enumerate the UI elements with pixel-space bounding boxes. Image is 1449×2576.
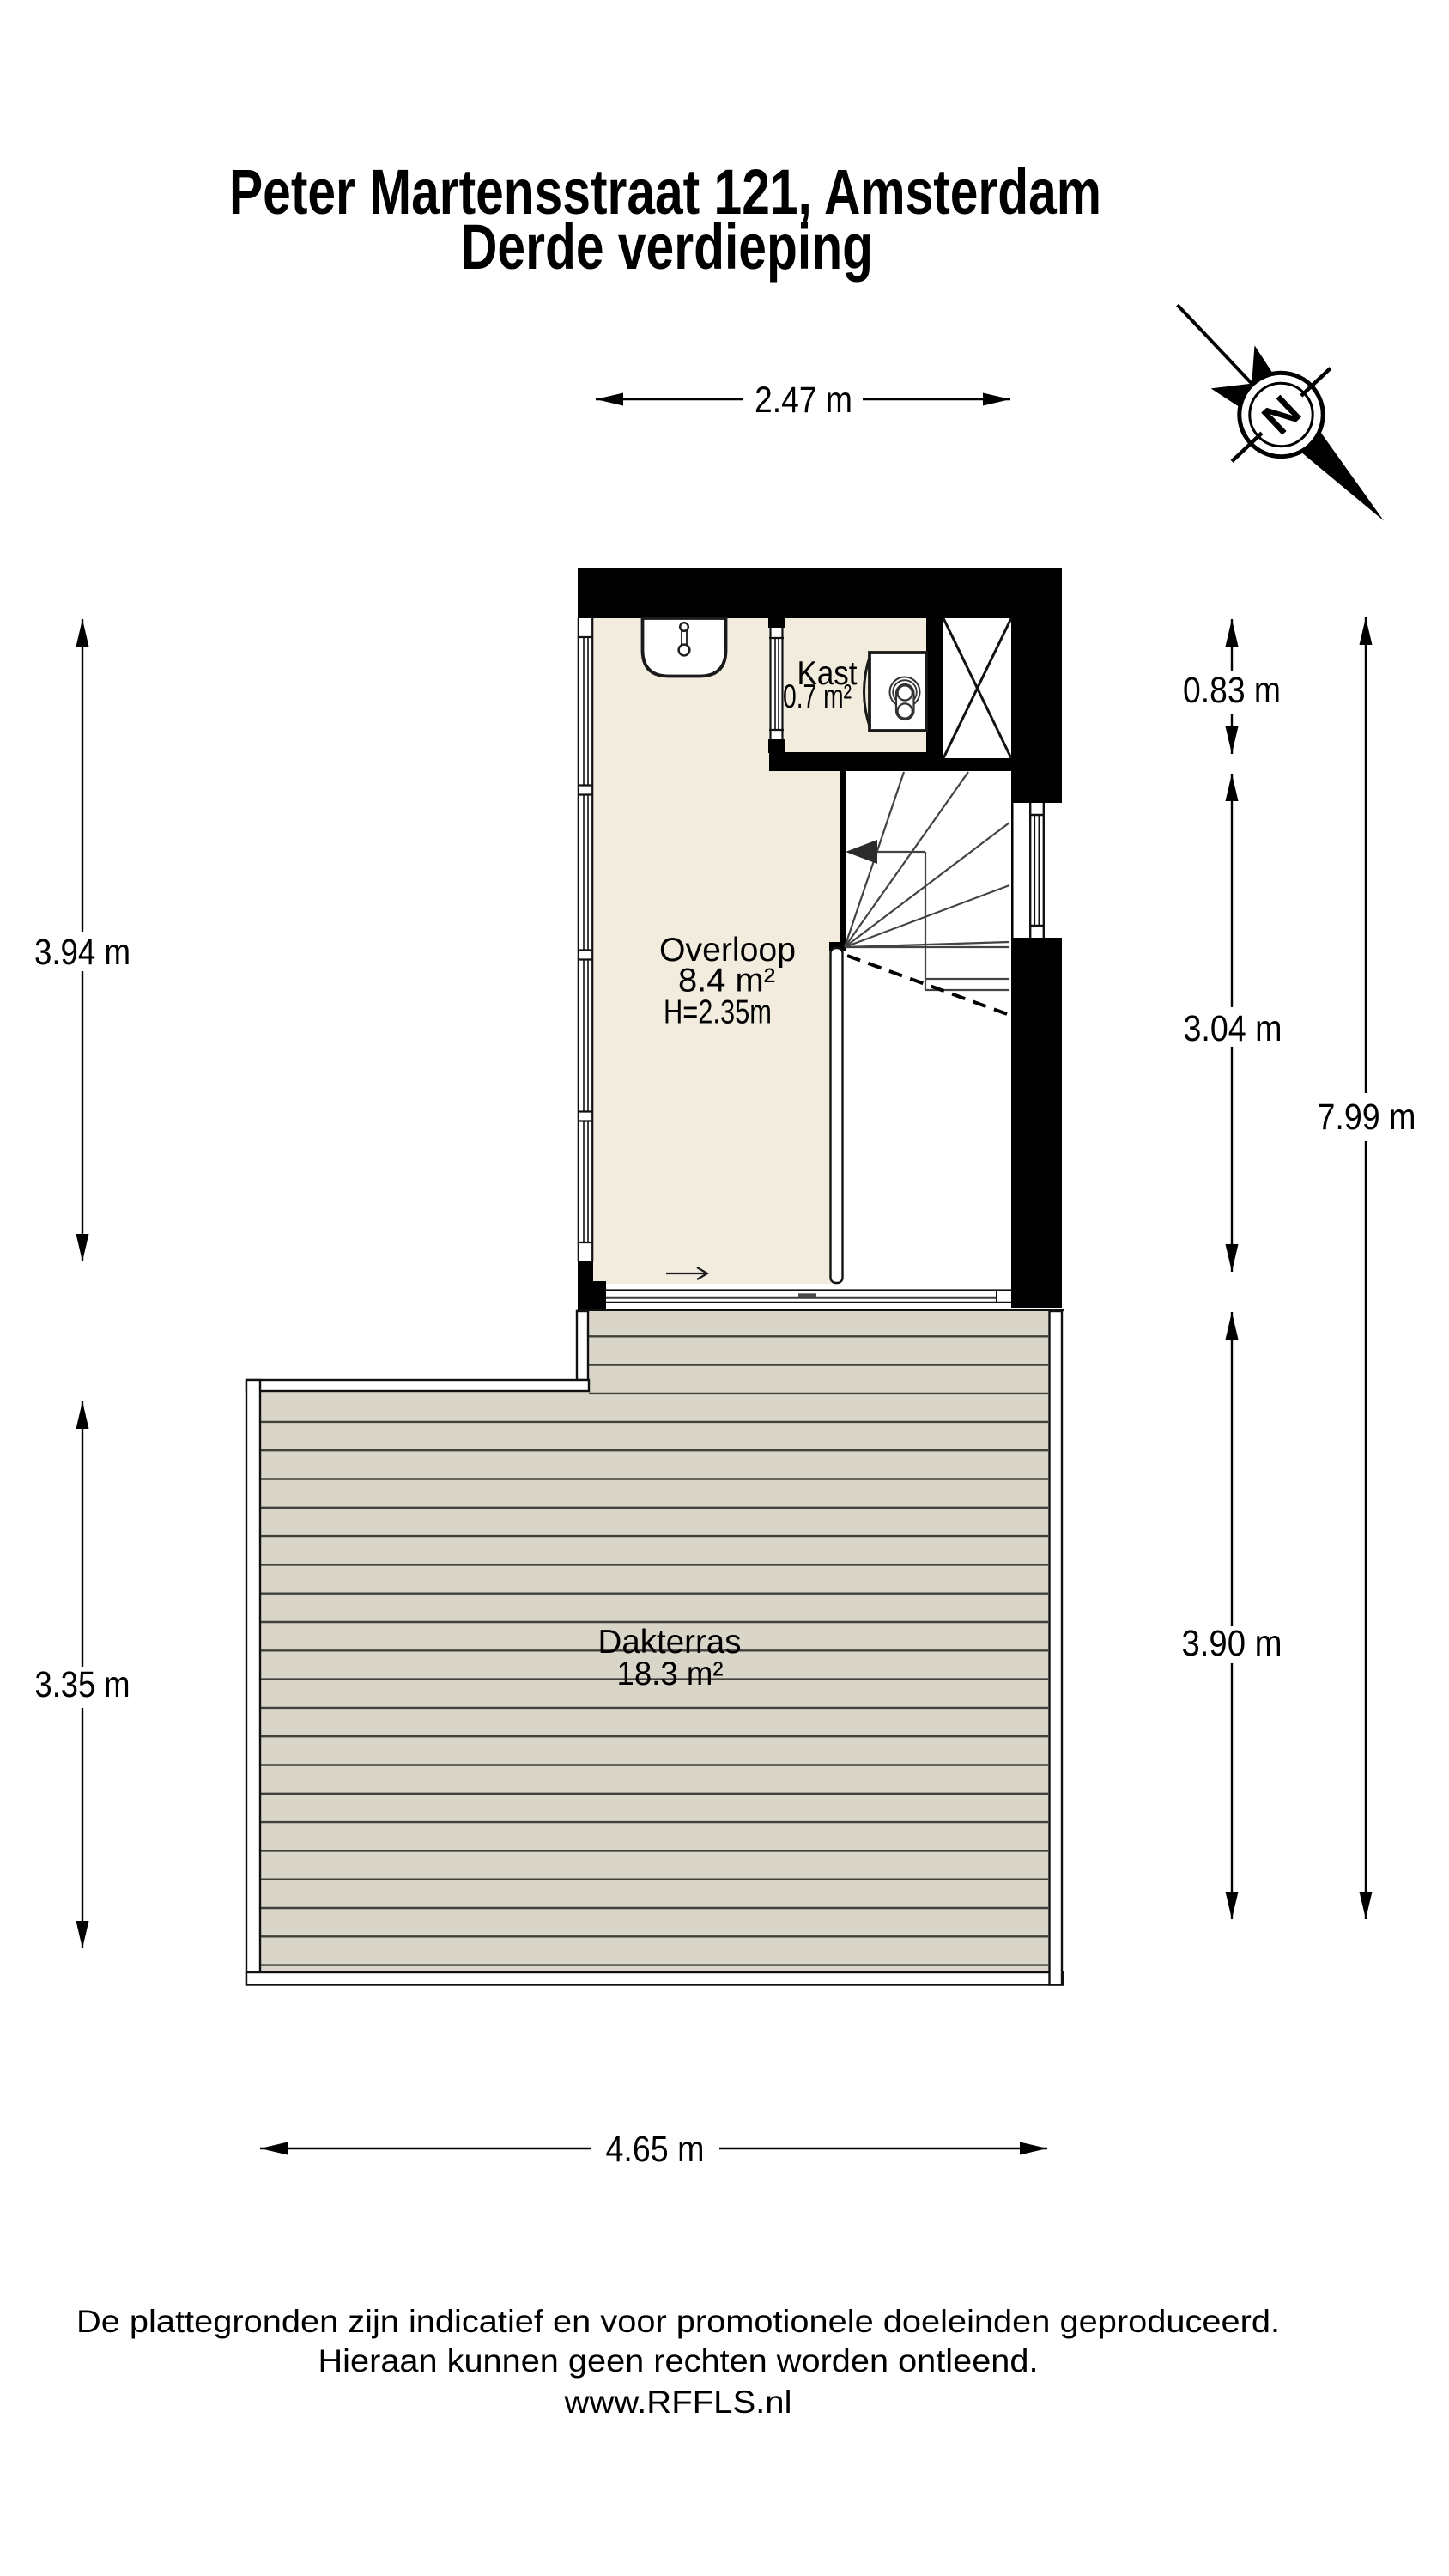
svg-text:0.83 m: 0.83 m (1183, 670, 1281, 711)
svg-text:www.RFFLS.nl: www.RFFLS.nl (563, 2385, 791, 2420)
svg-text:De plattegronden zijn indicati: De plattegronden zijn indicatief en voor… (76, 2304, 1280, 2339)
svg-text:0.7 m²: 0.7 m² (783, 678, 852, 715)
svg-text:3.90 m: 3.90 m (1182, 1623, 1282, 1664)
svg-text:4.65 m: 4.65 m (606, 2129, 705, 2170)
svg-text:2.47 m: 2.47 m (755, 380, 852, 421)
svg-text:Derde verdieping: Derde verdieping (461, 211, 873, 283)
svg-text:3.94 m: 3.94 m (34, 932, 130, 973)
svg-text:Hieraan kunnen geen rechten wo: Hieraan kunnen geen rechten worden ontle… (318, 2343, 1039, 2379)
svg-text:H=2.35m: H=2.35m (664, 994, 772, 1031)
svg-text:7.99 m: 7.99 m (1318, 1097, 1416, 1138)
svg-text:3.04 m: 3.04 m (1184, 1008, 1282, 1049)
svg-text:3.35 m: 3.35 m (35, 1664, 130, 1705)
svg-text:18.3 m²: 18.3 m² (617, 1656, 724, 1692)
